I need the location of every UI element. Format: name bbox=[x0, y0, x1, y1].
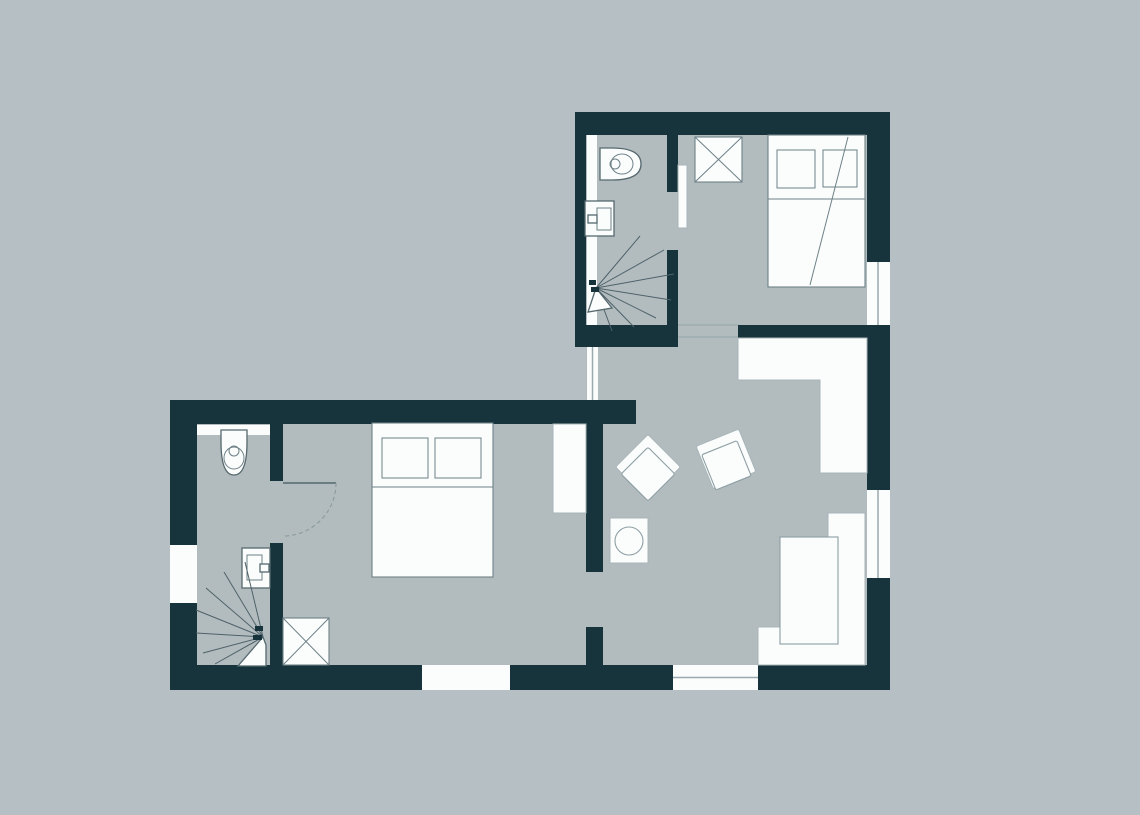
sink-tap bbox=[260, 564, 269, 572]
living-interior-wall-b bbox=[586, 627, 603, 665]
right-wall bbox=[867, 112, 890, 690]
tall-cabinet bbox=[553, 424, 586, 513]
double-bed-lower bbox=[372, 423, 493, 577]
sink-tap bbox=[588, 215, 597, 223]
lower-top-wall bbox=[170, 400, 636, 424]
sink-icon-upper bbox=[585, 201, 614, 236]
toilet-icon-upper bbox=[600, 148, 641, 180]
bath-interior-wall-a bbox=[270, 424, 283, 481]
stair-hub bbox=[253, 635, 262, 640]
stair-hub bbox=[255, 626, 263, 631]
upper-bed-bottom-wall bbox=[738, 325, 867, 338]
double-bed-upper bbox=[768, 135, 865, 287]
window-living-right bbox=[867, 490, 890, 578]
living-interior-wall-a bbox=[586, 424, 603, 572]
stair-hub bbox=[589, 280, 596, 285]
stair-hub bbox=[591, 287, 599, 292]
upper-top-wall bbox=[575, 112, 890, 135]
sliding-door-upper bbox=[678, 165, 687, 228]
bed-frame bbox=[768, 135, 865, 287]
upper-left-wall bbox=[575, 112, 586, 347]
window-bedroom-bottom bbox=[422, 665, 510, 690]
bath-interior-wall-b bbox=[270, 543, 283, 665]
window-left-wall bbox=[170, 545, 197, 603]
unit-connection-lines bbox=[587, 347, 598, 400]
wardrobe-crossed-lower bbox=[283, 618, 329, 665]
floor-plan-canvas bbox=[0, 0, 1140, 815]
table-lamp bbox=[615, 527, 643, 555]
bed-frame bbox=[372, 423, 493, 577]
lower-bottom-wall bbox=[170, 665, 890, 690]
upper-interior-wall-b bbox=[667, 250, 678, 325]
window-living-bottom bbox=[673, 665, 758, 690]
upper-bath-bottom-wall bbox=[575, 325, 678, 347]
side-table bbox=[610, 518, 648, 563]
upper-interior-wall-a bbox=[667, 135, 678, 192]
toilet-icon-lower bbox=[221, 430, 247, 475]
sofa-seat bbox=[780, 537, 838, 644]
window-upper-right bbox=[867, 262, 890, 325]
wardrobe-crossed-upper bbox=[695, 137, 742, 182]
